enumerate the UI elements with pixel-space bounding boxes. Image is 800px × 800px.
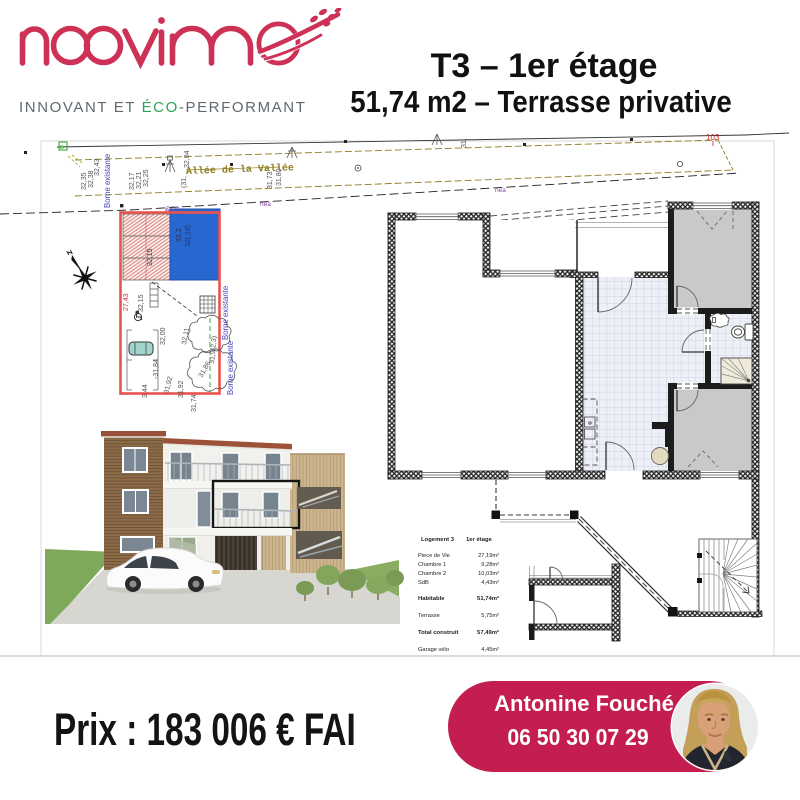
svg-text:Habitable: Habitable (418, 596, 445, 602)
svg-text:Borne existante: Borne existante (103, 154, 112, 208)
svg-text:9,28m²: 9,28m² (481, 562, 499, 568)
svg-text:4,45m²: 4,45m² (481, 647, 499, 653)
svg-text:32,15: 32,15 (147, 248, 154, 266)
svg-text:Chambre 1: Chambre 1 (418, 562, 446, 568)
svg-text:31,92: 31,92 (163, 376, 174, 395)
svg-text:32,15: 32,15 (138, 294, 145, 312)
svg-text:32,17: 32,17 (129, 172, 136, 190)
svg-text:3,44: 3,44 (142, 384, 149, 398)
svg-text:nea: nea (495, 187, 506, 194)
svg-text:1er étage: 1er étage (466, 537, 493, 543)
svg-text:Borne existante: Borne existante (226, 341, 235, 395)
svg-text:31,80: 31,80 (276, 168, 283, 186)
svg-text:32,25: 32,25 (143, 169, 150, 187)
svg-text:32(,18): 32(,18) (185, 225, 192, 247)
svg-text:DEP: DEP (166, 206, 179, 213)
svg-text:27,19m²: 27,19m² (478, 553, 499, 559)
svg-text:(31,: (31, (181, 176, 188, 188)
svg-text:Garage vélo: Garage vélo (418, 647, 449, 653)
svg-text:31,73: 31,73 (267, 171, 274, 189)
svg-text:31,: 31, (461, 138, 468, 148)
svg-text:Borne existante: Borne existante (221, 286, 230, 340)
svg-text:31,92: 31,92 (178, 380, 185, 398)
svg-text:SdB: SdB (418, 580, 429, 586)
svg-text:27,43: 27,43 (123, 293, 130, 311)
svg-text:32,2: 32,2 (176, 228, 183, 242)
svg-text:57,49m²: 57,49m² (477, 629, 499, 636)
svg-text:31,74: 31,74 (191, 394, 198, 412)
svg-text:INNOVANT ET ÉCO-PERFORMANT: INNOVANT ET ÉCO-PERFORMANT (19, 99, 306, 116)
svg-text:31,9(2,3): 31,9(2,3) (209, 336, 218, 365)
svg-text:32,00: 32,00 (160, 327, 167, 345)
svg-text:nea: nea (260, 201, 271, 208)
svg-text:32,35: 32,35 (81, 172, 88, 190)
svg-text:Terrasse: Terrasse (418, 613, 440, 619)
svg-text:Logement 3: Logement 3 (421, 537, 455, 543)
svg-text:Chambre 2: Chambre 2 (418, 571, 446, 577)
svg-text:Total construit: Total construit (418, 630, 459, 636)
svg-text:10,03m²: 10,03m² (478, 571, 499, 577)
svg-text:32,43: 32,43 (94, 158, 101, 176)
svg-text:Piece de Vie: Piece de Vie (418, 553, 450, 559)
svg-text:51,74m²: 51,74m² (477, 595, 499, 602)
svg-text:B: B (60, 145, 64, 151)
svg-text:32,11: 32,11 (181, 327, 191, 345)
svg-text:-31,84: -31,84 (153, 359, 160, 379)
svg-text:32,21: 32,21 (136, 171, 143, 189)
svg-text:5,75m²: 5,75m² (481, 613, 499, 619)
svg-text:32,04: 32,04 (184, 150, 191, 168)
svg-text:4,43m²: 4,43m² (481, 580, 499, 586)
